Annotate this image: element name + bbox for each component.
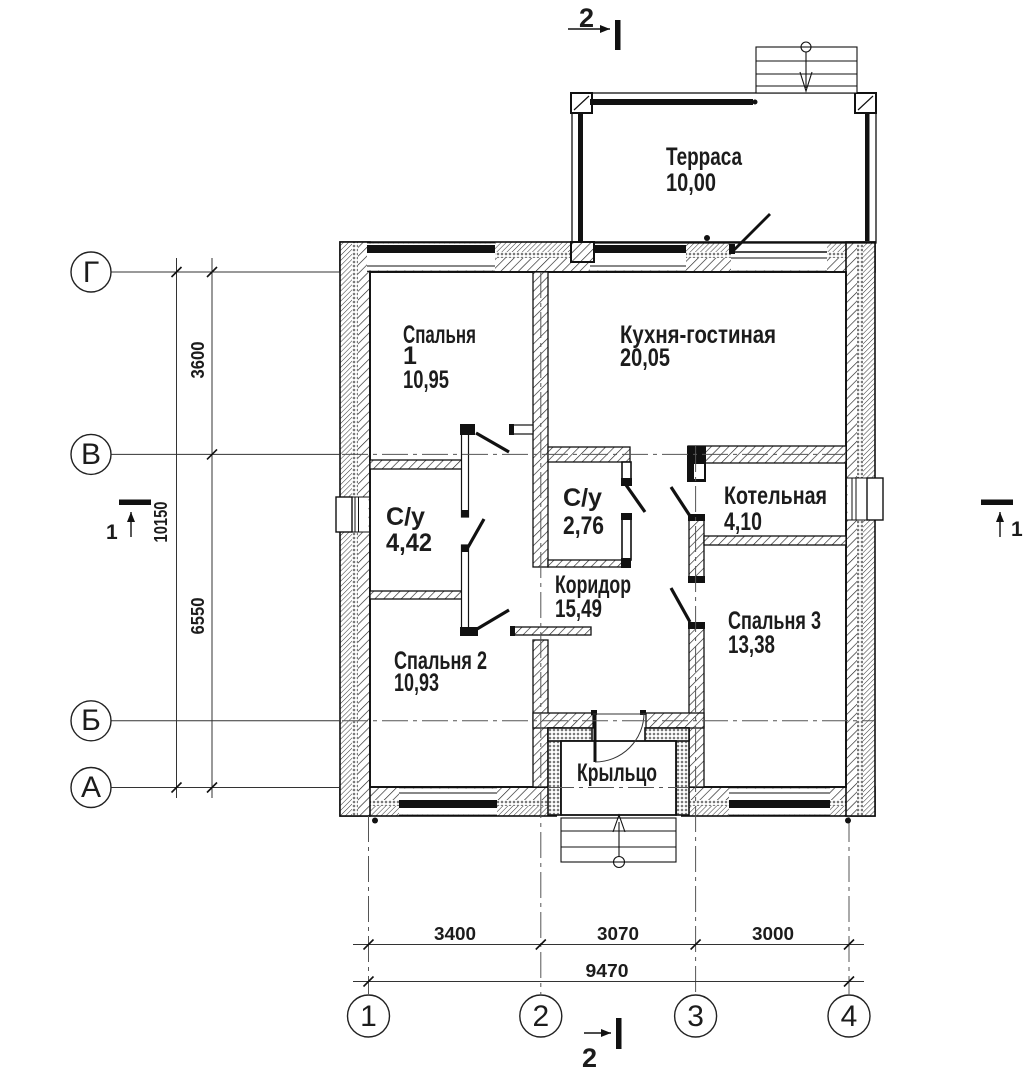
svg-text:2: 2 xyxy=(579,3,594,33)
svg-text:С/у: С/у xyxy=(386,503,425,531)
svg-text:2: 2 xyxy=(532,1000,549,1033)
svg-text:4,10: 4,10 xyxy=(724,508,762,536)
svg-text:Б: Б xyxy=(81,704,101,737)
svg-text:10,93: 10,93 xyxy=(394,669,439,697)
svg-text:Крыльцо: Крыльцо xyxy=(577,759,657,787)
svg-text:2: 2 xyxy=(582,1043,597,1073)
svg-text:Терраса: Терраса xyxy=(666,143,743,171)
svg-text:10,95: 10,95 xyxy=(403,366,449,394)
svg-text:4,42: 4,42 xyxy=(386,529,432,557)
svg-text:10,00: 10,00 xyxy=(666,169,716,197)
svg-text:9470: 9470 xyxy=(586,961,629,981)
svg-text:1: 1 xyxy=(106,521,118,544)
svg-text:А: А xyxy=(81,771,101,804)
svg-text:13,38: 13,38 xyxy=(728,631,775,659)
svg-text:В: В xyxy=(81,438,101,471)
svg-text:1: 1 xyxy=(360,1000,377,1033)
svg-text:4: 4 xyxy=(841,1000,858,1033)
svg-text:3070: 3070 xyxy=(597,924,639,944)
svg-text:Котельная: Котельная xyxy=(724,482,827,510)
svg-text:С/у: С/у xyxy=(563,484,602,512)
svg-text:Г: Г xyxy=(83,256,99,289)
svg-text:2,76: 2,76 xyxy=(563,512,604,540)
svg-text:20,05: 20,05 xyxy=(620,344,670,372)
svg-text:3400: 3400 xyxy=(434,924,476,944)
svg-text:10150: 10150 xyxy=(151,502,171,543)
svg-text:3600: 3600 xyxy=(188,342,208,379)
svg-text:6550: 6550 xyxy=(188,598,208,635)
svg-text:3000: 3000 xyxy=(752,924,794,944)
svg-text:3: 3 xyxy=(687,1000,704,1033)
svg-text:1: 1 xyxy=(1011,518,1023,541)
svg-text:15,49: 15,49 xyxy=(555,595,602,623)
